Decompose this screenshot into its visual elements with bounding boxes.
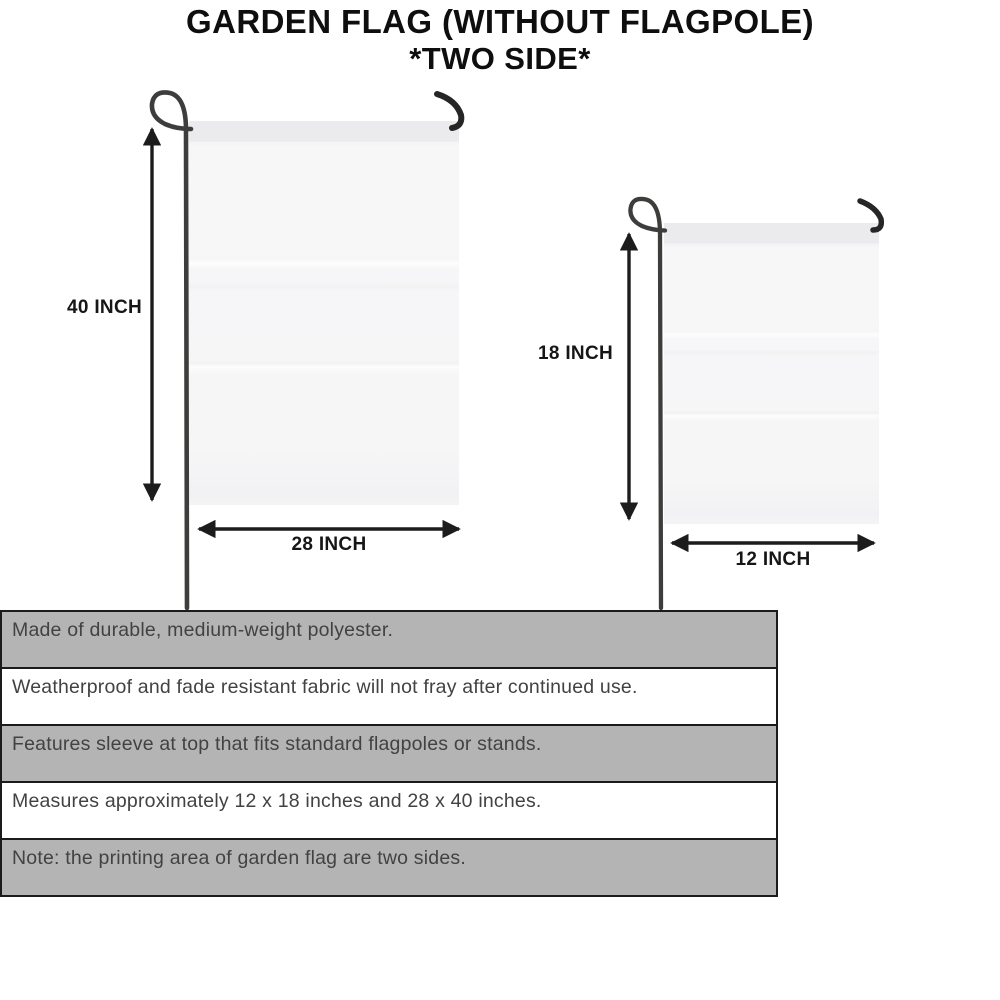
flag-large-preview bbox=[189, 121, 459, 505]
flagpole-small bbox=[630, 199, 665, 608]
feature-row: Made of durable, medium-weight polyester… bbox=[2, 612, 776, 667]
flag-small-preview bbox=[664, 223, 879, 524]
product-size-diagram: GARDEN FLAG (WITHOUT FLAGPOLE) *TWO SIDE… bbox=[0, 0, 1000, 1000]
small-height-label: 18 INCH bbox=[493, 343, 613, 365]
page-subtitle: *TWO SIDE* bbox=[0, 41, 1000, 77]
flagpole-large bbox=[152, 92, 191, 608]
small-width-label: 12 INCH bbox=[673, 549, 873, 571]
large-height-label: 40 INCH bbox=[20, 297, 142, 319]
feature-row: Features sleeve at top that fits standar… bbox=[2, 724, 776, 781]
feature-row: Measures approximately 12 x 18 inches an… bbox=[2, 781, 776, 838]
feature-row: Weatherproof and fade resistant fabric w… bbox=[2, 667, 776, 724]
features-table: Made of durable, medium-weight polyester… bbox=[0, 610, 778, 897]
large-width-label: 28 INCH bbox=[229, 534, 429, 556]
feature-row: Note: the printing area of garden flag a… bbox=[2, 838, 776, 895]
page-title: GARDEN FLAG (WITHOUT FLAGPOLE) bbox=[0, 3, 1000, 41]
